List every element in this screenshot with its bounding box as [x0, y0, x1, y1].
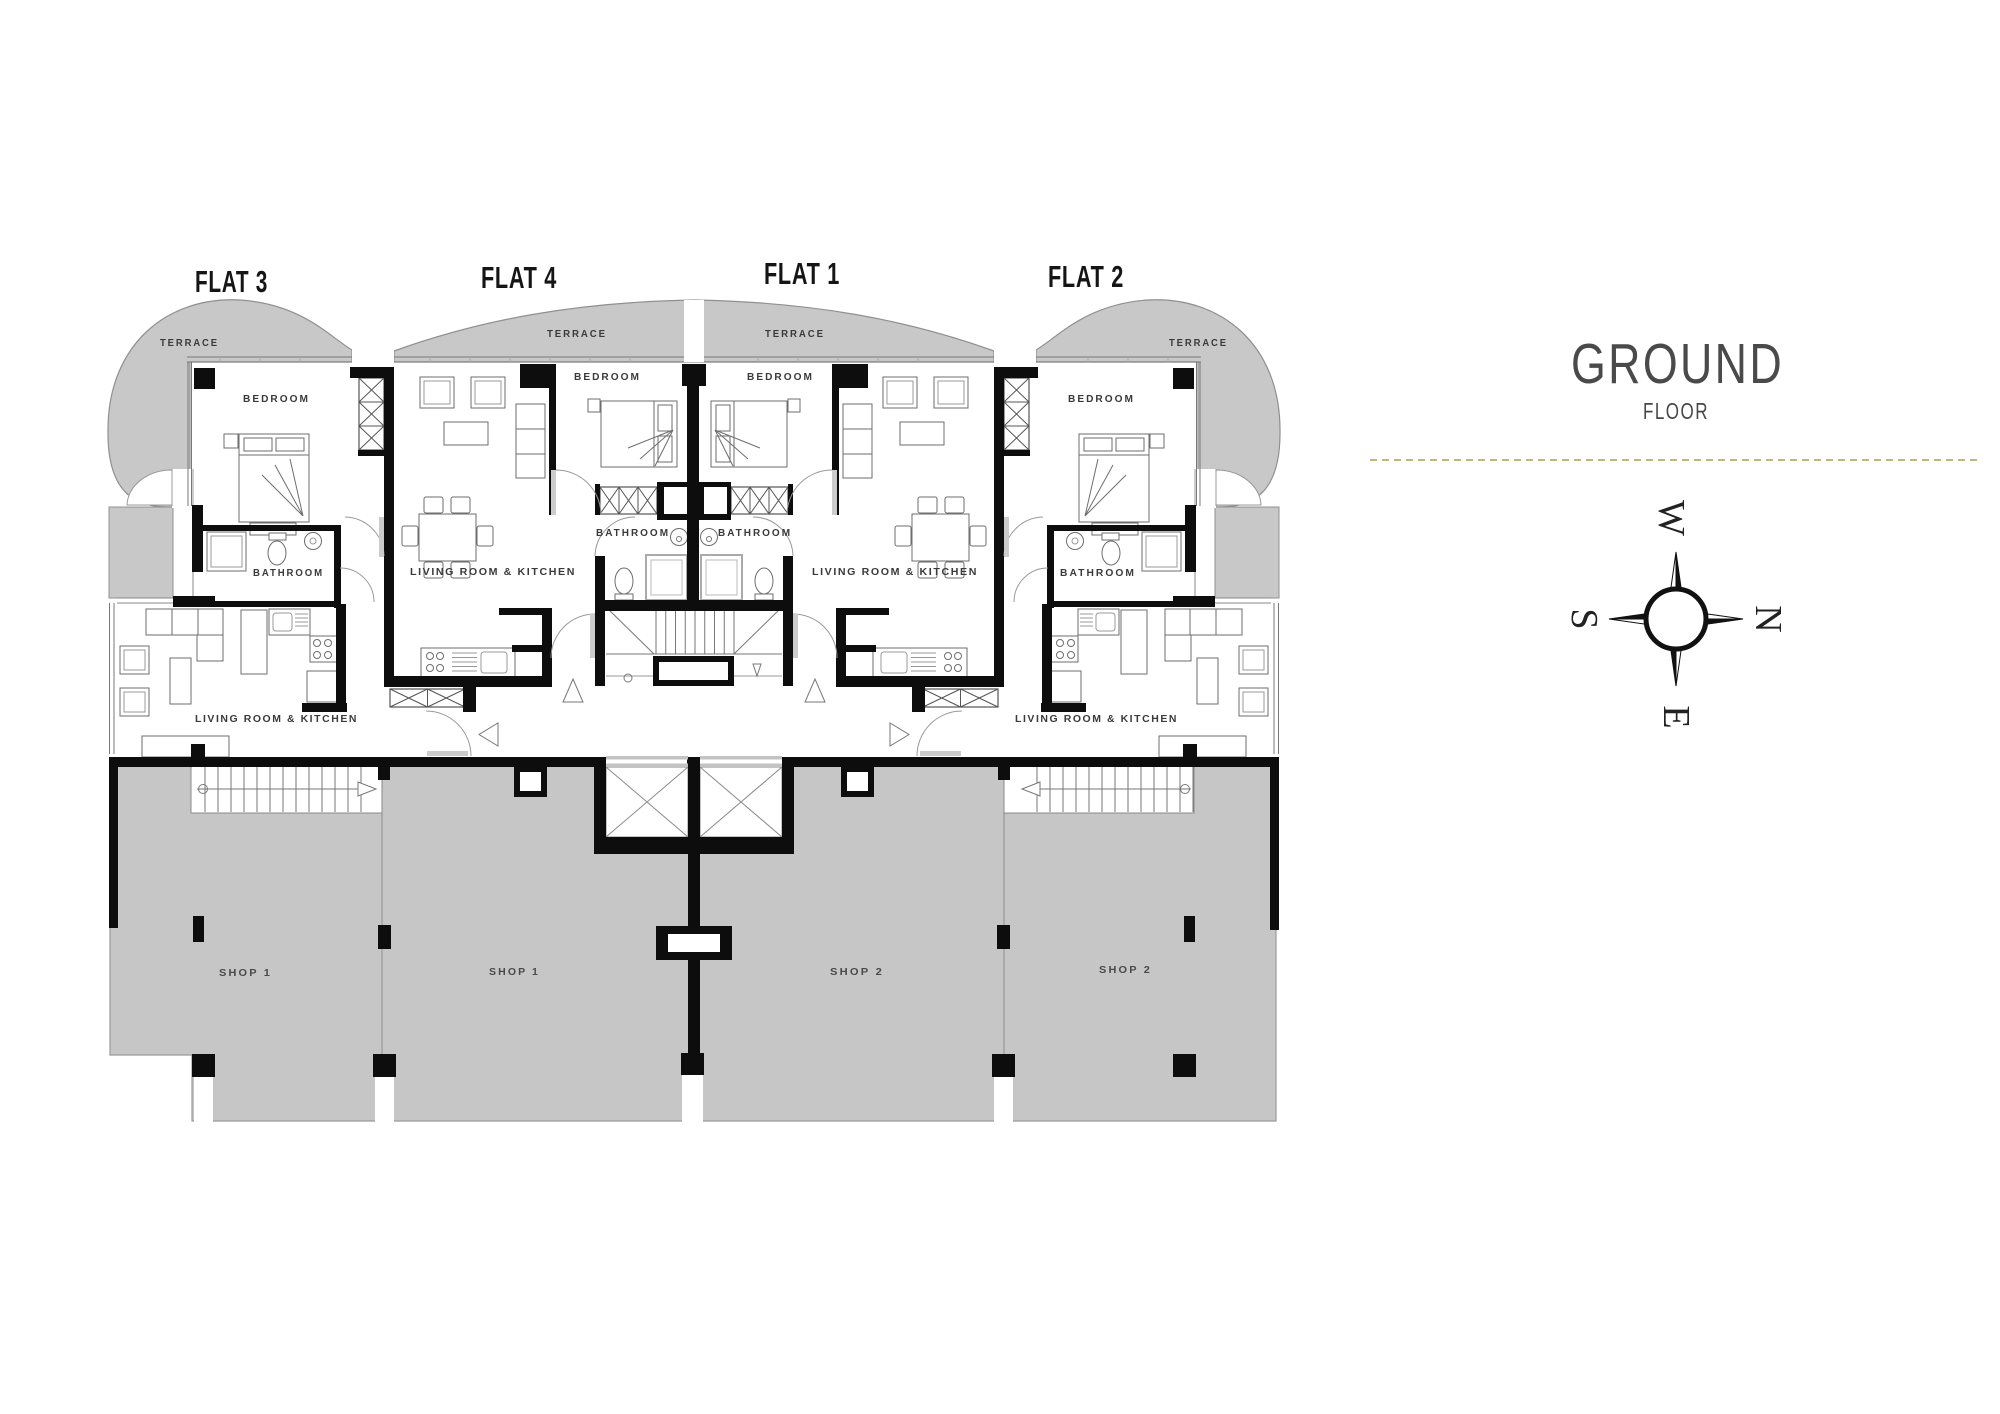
- svg-text:LIVING ROOM & KITCHEN: LIVING ROOM & KITCHEN: [410, 567, 576, 578]
- svg-text:BATHROOM: BATHROOM: [253, 568, 324, 579]
- svg-text:LIVING ROOM & KITCHEN: LIVING ROOM & KITCHEN: [1015, 714, 1178, 725]
- svg-text:FLAT 4: FLAT 4: [481, 260, 557, 295]
- svg-text:BEDROOM: BEDROOM: [1068, 394, 1135, 405]
- svg-text:BATHROOM: BATHROOM: [1060, 568, 1136, 579]
- svg-text:FLAT 3: FLAT 3: [195, 264, 268, 299]
- svg-text:E: E: [1655, 705, 1697, 728]
- svg-text:S: S: [1563, 608, 1605, 629]
- svg-text:SHOP 1: SHOP 1: [219, 968, 272, 979]
- svg-text:SHOP 2: SHOP 2: [1099, 965, 1152, 976]
- svg-text:TERRACE: TERRACE: [1169, 338, 1228, 349]
- svg-text:FLOOR: FLOOR: [1643, 398, 1709, 424]
- svg-text:LIVING ROOM & KITCHEN: LIVING ROOM & KITCHEN: [195, 714, 358, 725]
- svg-text:TERRACE: TERRACE: [160, 338, 219, 349]
- svg-text:FLAT 2: FLAT 2: [1048, 259, 1124, 294]
- svg-text:TERRACE: TERRACE: [765, 329, 825, 340]
- svg-text:GROUND: GROUND: [1571, 332, 1784, 396]
- svg-text:BEDROOM: BEDROOM: [243, 394, 310, 405]
- svg-text:SHOP 2: SHOP 2: [830, 967, 884, 978]
- svg-text:TERRACE: TERRACE: [547, 329, 607, 340]
- svg-text:W: W: [1650, 500, 1692, 536]
- svg-text:BEDROOM: BEDROOM: [747, 372, 814, 383]
- svg-text:SHOP 1: SHOP 1: [489, 967, 540, 978]
- svg-text:BATHROOM: BATHROOM: [596, 528, 670, 539]
- svg-text:FLAT 1: FLAT 1: [764, 256, 840, 291]
- svg-text:BATHROOM: BATHROOM: [718, 528, 792, 539]
- svg-text:BEDROOM: BEDROOM: [574, 372, 641, 383]
- svg-text:N: N: [1747, 605, 1789, 632]
- svg-text:LIVING ROOM & KITCHEN: LIVING ROOM & KITCHEN: [812, 567, 978, 578]
